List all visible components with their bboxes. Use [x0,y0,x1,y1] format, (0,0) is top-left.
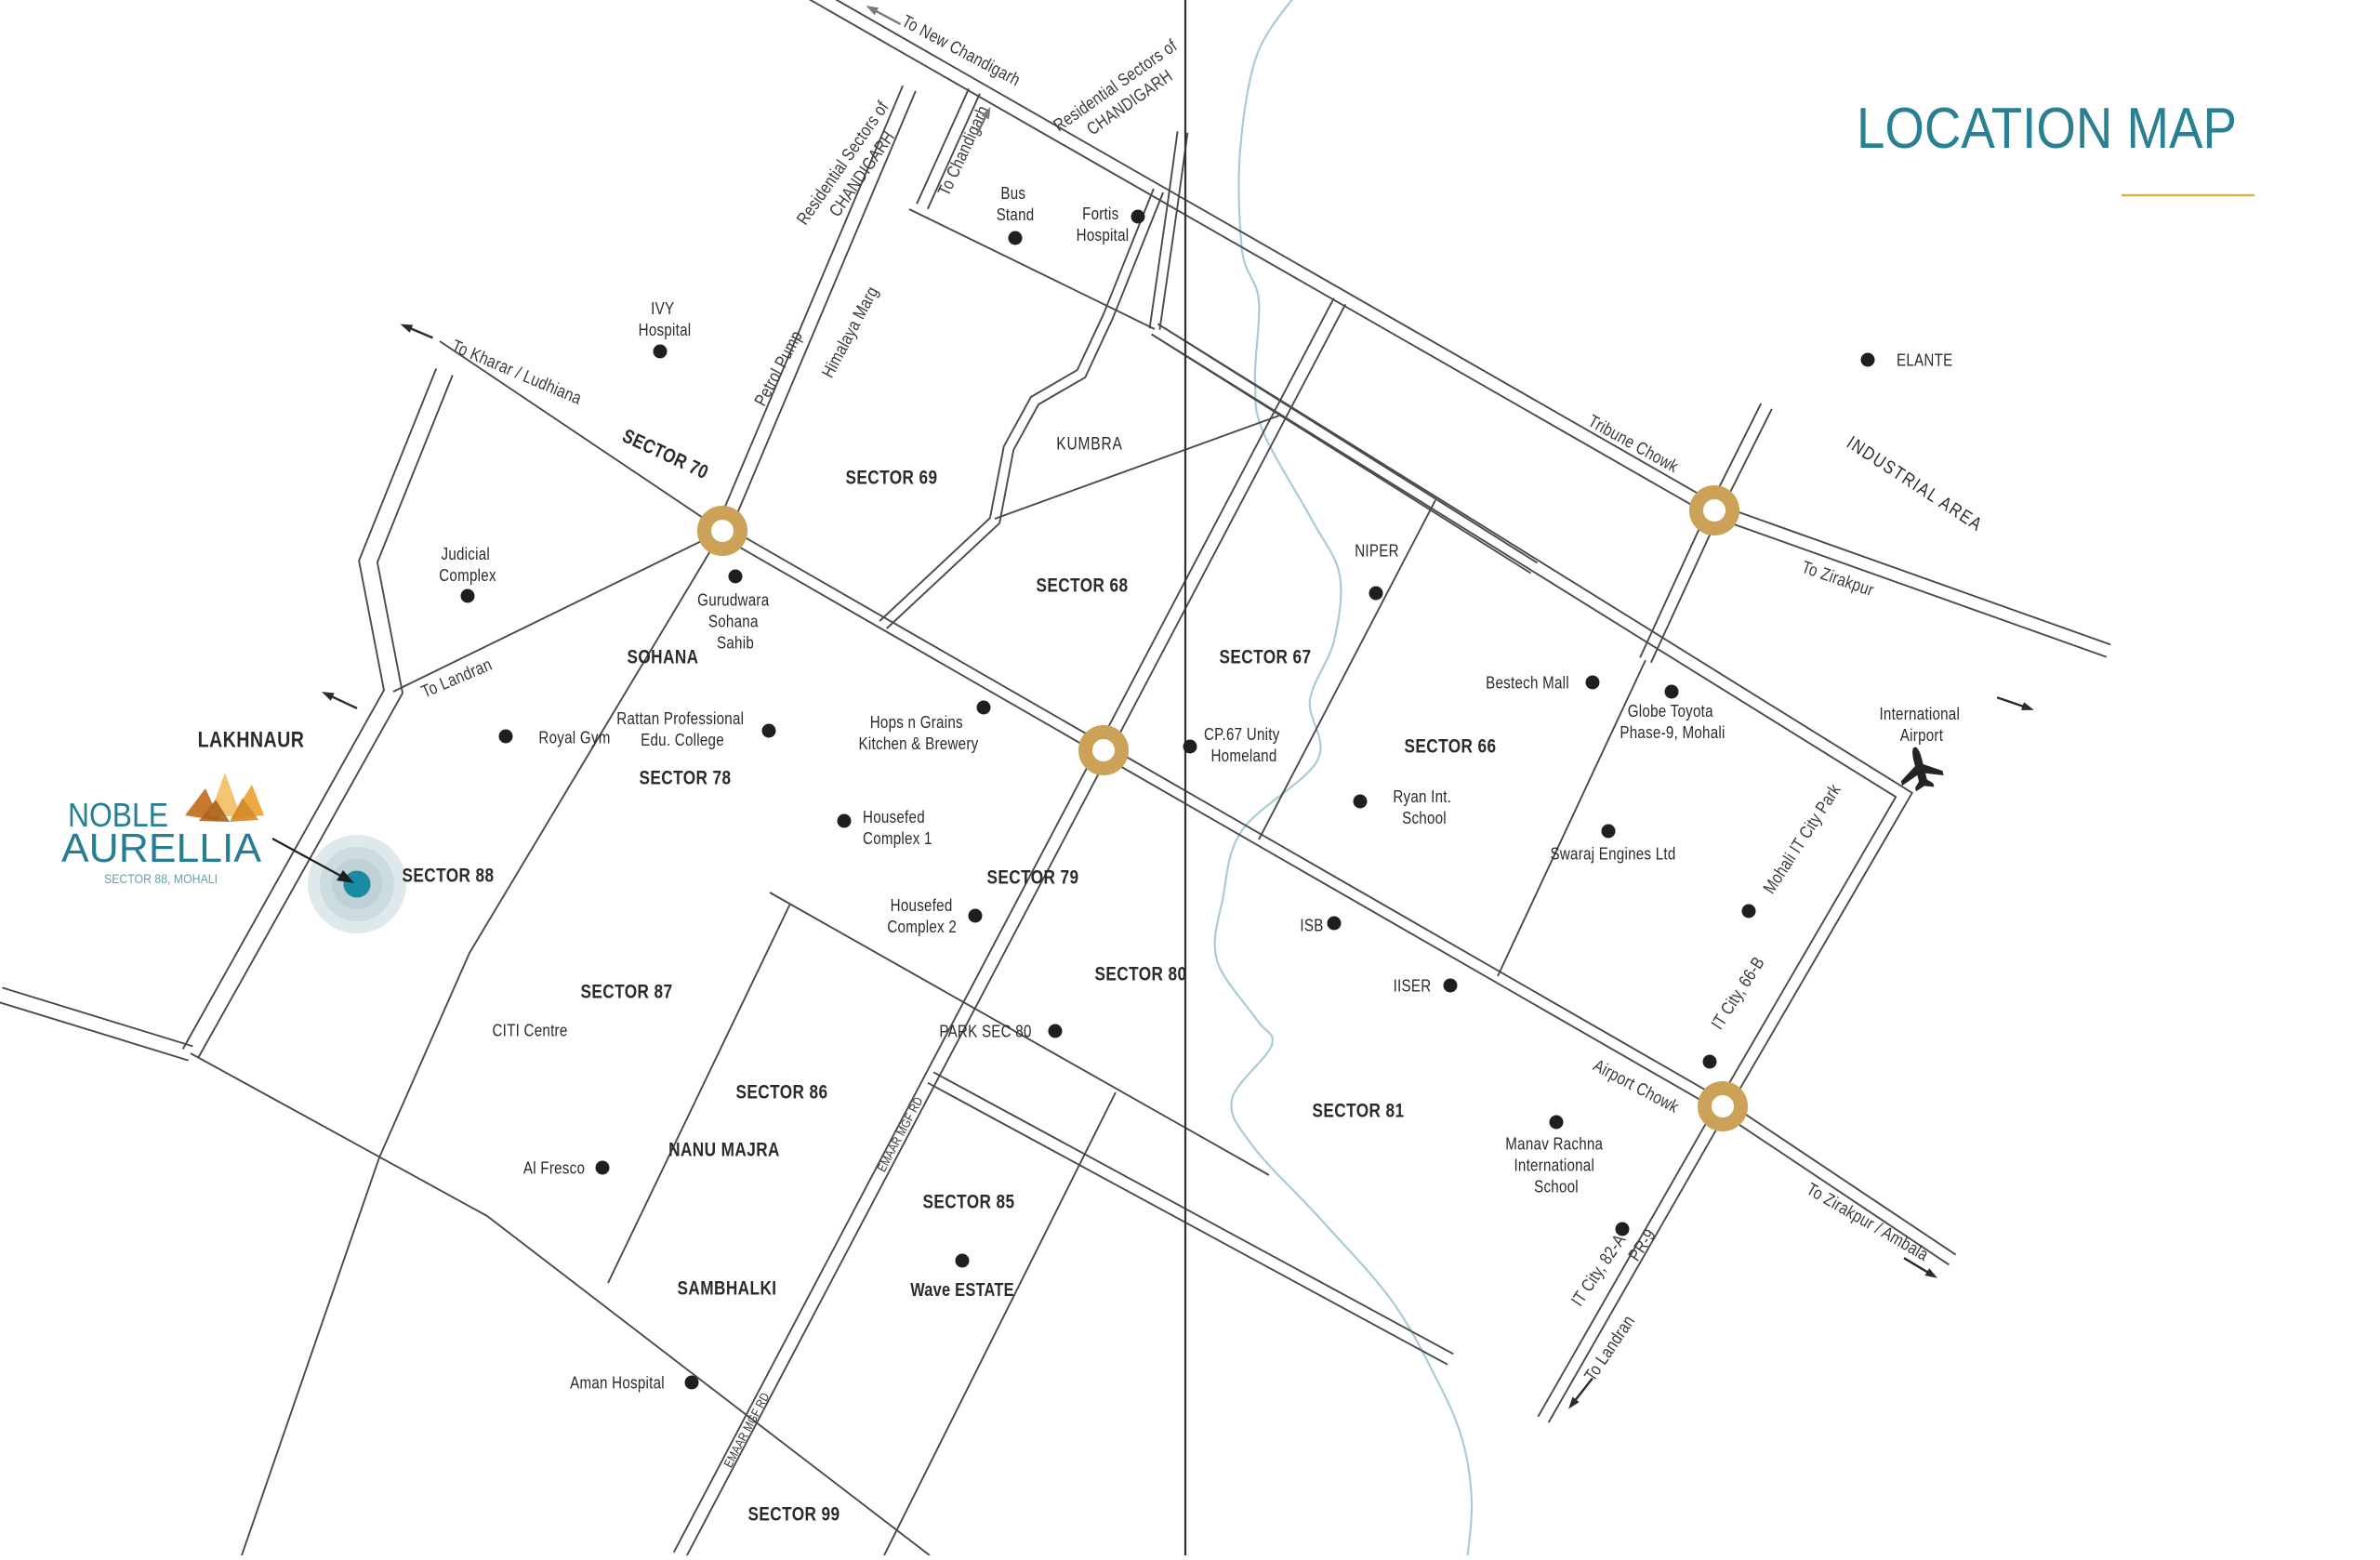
svg-text:Royal Gym: Royal Gym [538,728,610,747]
svg-text:AURELLIA: AURELLIA [61,826,262,871]
svg-text:SECTOR 81: SECTOR 81 [1312,1101,1404,1122]
svg-text:SECTOR 67: SECTOR 67 [1219,647,1311,668]
svg-text:ISB: ISB [1300,916,1323,935]
svg-text:SOHANA: SOHANA [627,647,698,668]
svg-text:SECTOR 79: SECTOR 79 [986,867,1078,889]
svg-text:NIPER: NIPER [1355,541,1399,561]
svg-text:PARK SEC 80: PARK SEC 80 [939,1022,1031,1041]
svg-text:SAMBHALKI: SAMBHALKI [678,1278,777,1300]
svg-text:SECTOR 66: SECTOR 66 [1404,736,1496,758]
svg-text:SECTOR 99: SECTOR 99 [747,1504,840,1526]
svg-text:Wave ESTATE: Wave ESTATE [910,1278,1014,1300]
svg-text:KUMBRA: KUMBRA [1056,433,1123,454]
svg-text:Al Fresco: Al Fresco [523,1158,585,1178]
svg-text:SECTOR 78: SECTOR 78 [639,768,731,789]
svg-text:SECTOR 86: SECTOR 86 [735,1082,827,1104]
svg-text:SECTOR 88: SECTOR 88 [402,866,494,887]
svg-text:LOCATION MAP: LOCATION MAP [1857,97,2237,161]
svg-text:IISER: IISER [1394,976,1432,996]
svg-text:ELANTE: ELANTE [1897,350,1952,370]
svg-text:SECTOR 80: SECTOR 80 [1094,964,1186,985]
svg-text:Swaraj Engines Ltd: Swaraj Engines Ltd [1550,844,1675,864]
svg-text:SECTOR 69: SECTOR 69 [845,468,937,489]
svg-text:SECTOR 85: SECTOR 85 [922,1192,1014,1213]
svg-text:SECTOR 88, MOHALI: SECTOR 88, MOHALI [104,871,218,886]
svg-text:Aman Hospital: Aman Hospital [570,1373,665,1393]
svg-text:NANU MAJRA: NANU MAJRA [668,1140,780,1161]
svg-text:LAKHNAUR: LAKHNAUR [198,727,305,752]
svg-text:SECTOR 87: SECTOR 87 [580,982,672,1003]
svg-text:CITI Centre: CITI Centre [492,1021,567,1040]
svg-text:Bestech Mall: Bestech Mall [1486,673,1569,693]
svg-text:SECTOR 68: SECTOR 68 [1036,575,1128,597]
